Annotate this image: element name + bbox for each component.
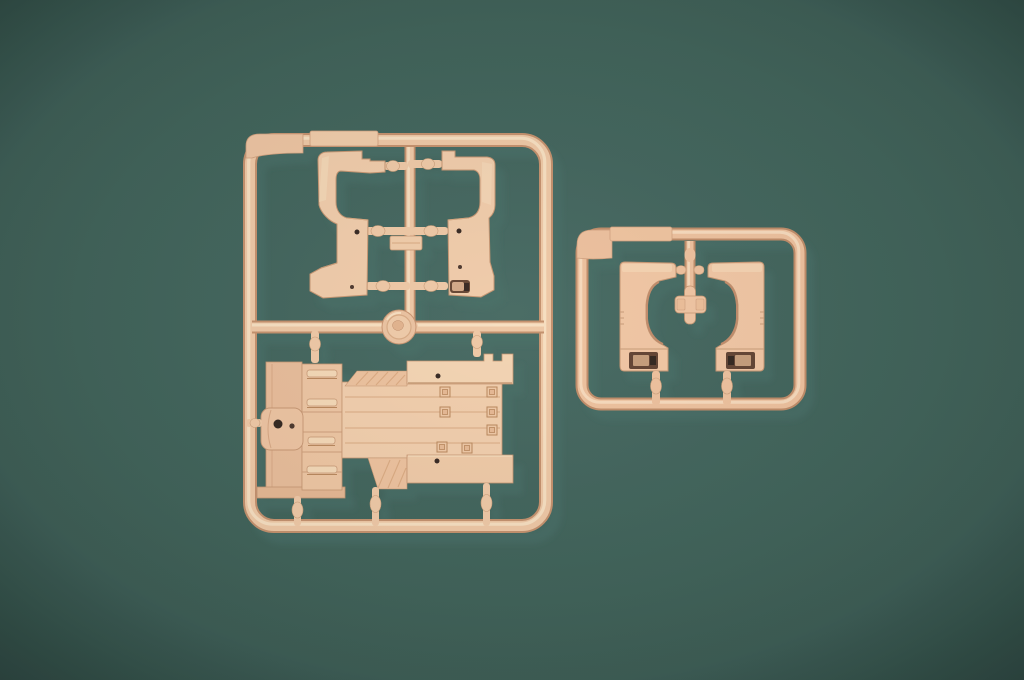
film-grain-overlay	[0, 0, 1024, 680]
model-sprues-photo: Two tan plastic model-kit sprues photogr…	[0, 0, 1024, 680]
photo-stage: Two tan plastic model-kit sprues photogr…	[0, 0, 1024, 680]
sprues-photo-canvas: Two tan plastic model-kit sprues photogr…	[0, 0, 1024, 680]
